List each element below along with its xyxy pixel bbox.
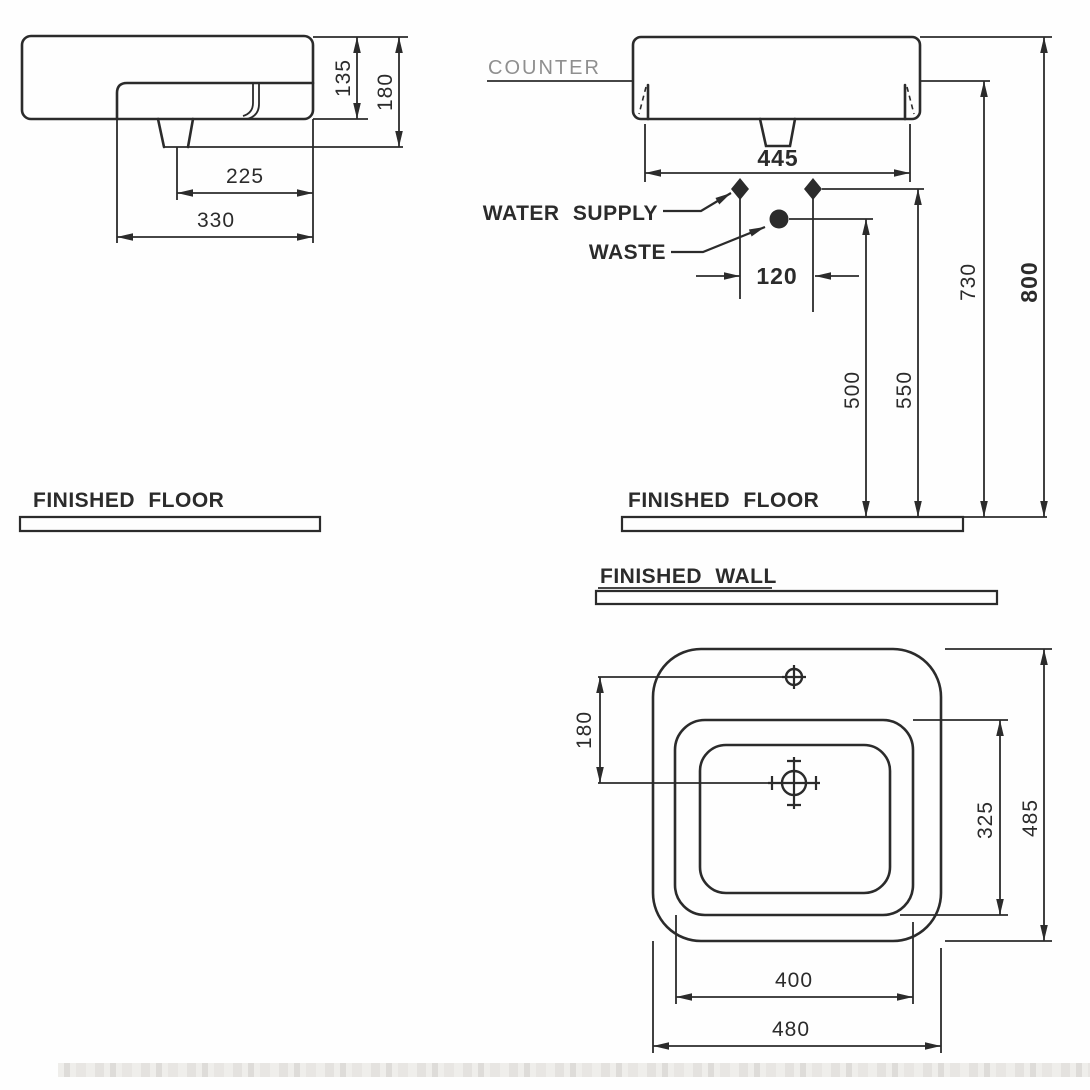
technical-drawing-page: 135 180 225 330 COUNTER 445: [0, 0, 1090, 1090]
basin-front-outline: [633, 37, 920, 119]
counter-cutout-hidden-lines: [639, 87, 914, 114]
front-extension-lines: [740, 189, 924, 312]
photo-edge-strip: [58, 1063, 1090, 1077]
plan-extension-lines: [598, 649, 1052, 1053]
dim-480-text: 480: [772, 1018, 810, 1041]
water-supply-point-right-icon: [804, 178, 822, 200]
side-view: 135 180 225 330: [22, 36, 408, 243]
dim-325: 325: [974, 720, 1000, 915]
dim-800-text: 800: [1016, 261, 1042, 302]
dim-400: 400: [676, 969, 913, 997]
basin-side-overflow-line1: [243, 83, 253, 116]
dim-400-text: 400: [775, 969, 813, 992]
front-view: COUNTER 445 WATER SUPPLY WASTE 120 500: [483, 37, 1052, 517]
dim-500-text: 500: [841, 371, 864, 409]
dim-330-text: 330: [197, 209, 235, 232]
basin-side-outline: [22, 36, 313, 119]
side-extension-lines: [117, 37, 408, 243]
dim-550: 550: [893, 189, 918, 517]
dim-180-side: 180: [374, 37, 399, 147]
dim-800: 800: [1016, 37, 1044, 517]
finished-floor-left-label: FINISHED FLOOR: [33, 489, 224, 512]
dim-325-text: 325: [974, 801, 997, 839]
dim-730-text: 730: [957, 263, 980, 301]
dim-225: 225: [177, 165, 313, 193]
dim-445-text: 445: [757, 145, 798, 171]
finished-wall-label: FINISHED WALL: [600, 565, 777, 588]
waste-point-icon: [770, 210, 789, 229]
dim-120-text: 120: [756, 263, 797, 289]
finished-wall-bar: [596, 591, 997, 604]
levels: FINISHED FLOOR FINISHED FLOOR FINISHED W…: [20, 489, 1047, 604]
dim-445: 445: [645, 124, 910, 182]
water-supply-label: WATER SUPPLY: [483, 202, 658, 225]
waste-leader: [671, 227, 765, 252]
dim-485: 485: [1019, 649, 1044, 941]
washbasin-installation-diagram: 135 180 225 330 COUNTER 445: [0, 0, 1090, 1090]
counter-label: COUNTER: [488, 57, 601, 79]
dim-730: 730: [957, 81, 984, 517]
faucet-hole-icon: [782, 665, 806, 689]
dim-135: 135: [332, 37, 357, 119]
water-supply-leader: [663, 193, 731, 211]
dim-180-plan: 180: [573, 677, 600, 783]
dim-225-text: 225: [226, 165, 264, 188]
waste-label: WASTE: [589, 241, 666, 264]
plan-view: 180 325 485 400 480: [573, 649, 1052, 1053]
dim-550-text: 550: [893, 371, 916, 409]
finished-floor-left-bar: [20, 517, 320, 531]
dim-180-plan-text: 180: [573, 711, 596, 749]
dim-330: 330: [117, 209, 313, 237]
dim-135-text: 135: [332, 59, 355, 97]
water-supply-point-left-icon: [731, 178, 749, 200]
finished-floor-right-label: FINISHED FLOOR: [628, 489, 819, 512]
basin-side-drain-stub: [158, 119, 193, 147]
basin-side-counter-ledge: [117, 83, 313, 119]
basin-front-drain-stub: [760, 119, 795, 146]
dim-500: 500: [841, 219, 866, 517]
basin-side-base-line: [164, 119, 403, 147]
counter-cutout-edges: [648, 85, 905, 119]
dim-120: 120: [696, 263, 859, 289]
dim-485-text: 485: [1019, 799, 1042, 837]
dim-480: 480: [653, 1018, 941, 1046]
drain-center-icon: [768, 757, 820, 809]
dim-180-side-text: 180: [374, 73, 397, 111]
finished-floor-right-bar: [622, 517, 963, 531]
